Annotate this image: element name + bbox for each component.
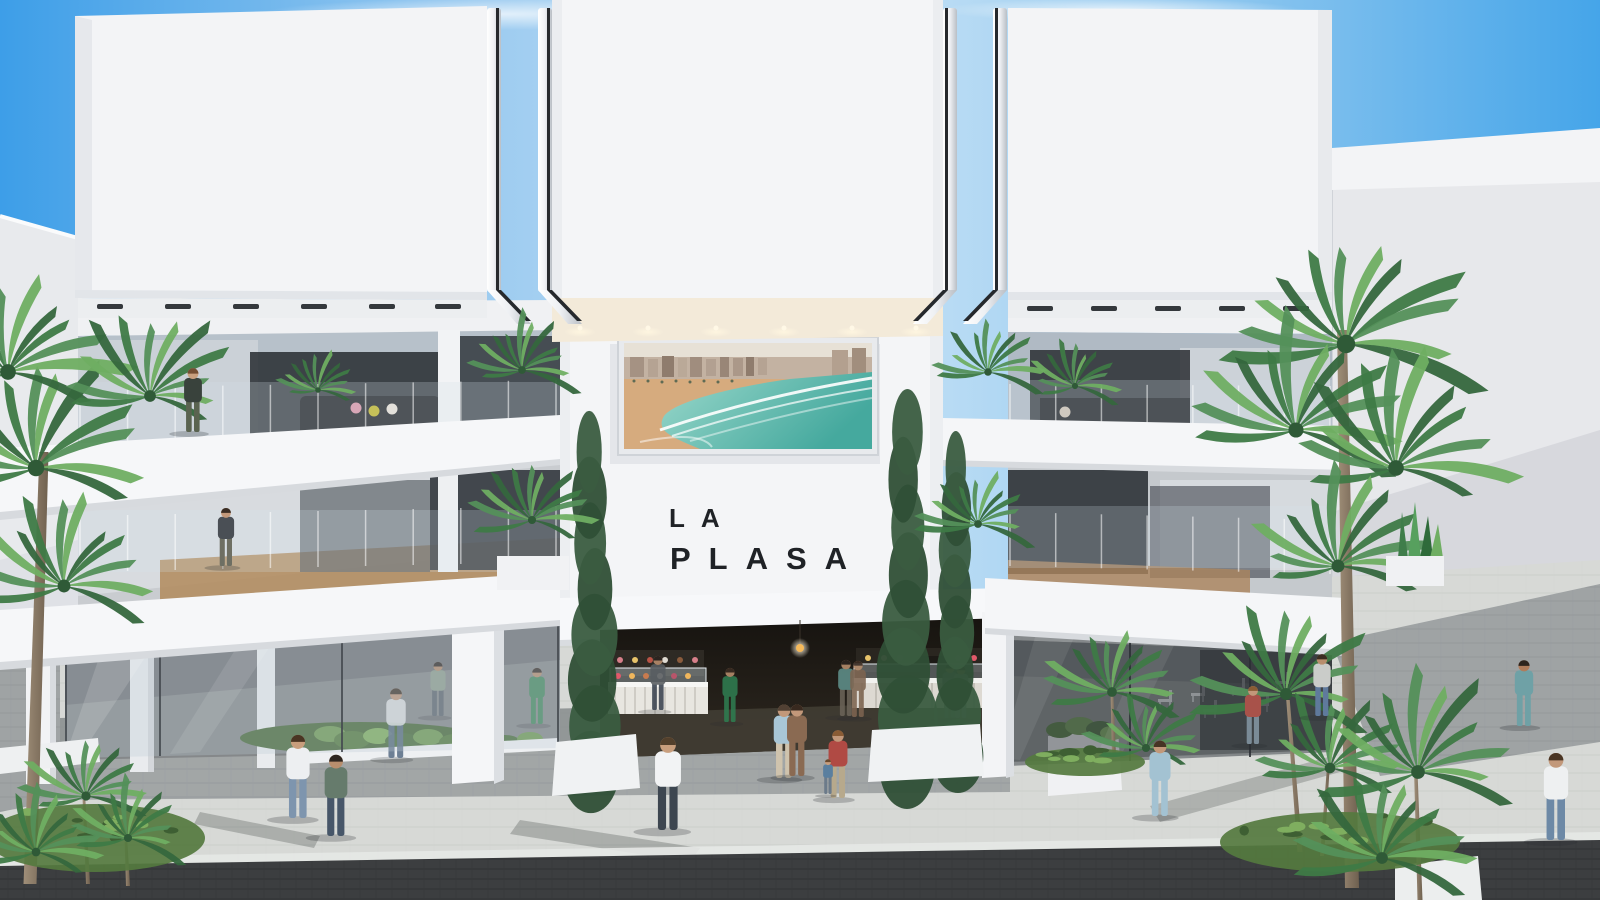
architectural-render-la-plasa: LA PLASA: [0, 0, 1600, 900]
top-volume-center: [552, 0, 943, 310]
downlight: [850, 326, 855, 331]
top-volume-right-side: [1318, 10, 1332, 300]
front-column-right-shade: [1006, 614, 1014, 778]
top-volumes: [75, 0, 1332, 342]
sofa-cushion: [351, 403, 362, 414]
downlight: [782, 326, 787, 331]
top-volume-right-bottom: [1008, 292, 1332, 300]
left-1f-railing-glass: [78, 510, 560, 572]
downlight: [578, 326, 583, 331]
chrome-tube-line: [496, 8, 499, 292]
sofa-cushion: [369, 406, 380, 417]
logo-line-1: LA: [669, 503, 736, 533]
downlight: [914, 326, 919, 331]
track-light: [435, 304, 461, 309]
billboard-beach-photo: [624, 343, 872, 449]
track-light: [165, 304, 191, 309]
top-volume-left-side: [75, 16, 92, 298]
sofa-cushion: [387, 404, 398, 415]
chrome-tube-line: [995, 8, 998, 292]
chrome-tube-line: [547, 8, 550, 292]
track-light: [233, 304, 259, 309]
cypress-planter-right: [868, 724, 984, 782]
logo-line-2: PLASA: [670, 541, 865, 576]
top-volume-center-edge: [552, 0, 562, 310]
track-light: [301, 304, 327, 309]
track-light: [97, 304, 123, 309]
cypress-planter-left: [552, 734, 640, 796]
left-ceiling-strip: [78, 298, 487, 318]
downlight: [714, 326, 719, 331]
front-column-left-shade: [494, 612, 504, 784]
track-light: [1091, 306, 1117, 311]
track-light: [1155, 306, 1181, 311]
track-light: [1219, 306, 1245, 311]
top-volume-right: [1008, 8, 1332, 300]
downlight: [646, 326, 651, 331]
center-lit-ceiling: [552, 298, 943, 342]
sofa-cushion: [1060, 407, 1071, 418]
track-light: [369, 304, 395, 309]
top-volume-center-edge: [933, 0, 943, 310]
track-light: [1027, 306, 1053, 311]
chrome-tube-line: [945, 8, 948, 292]
sansevieria-planter: [1386, 556, 1444, 586]
pendant-lamp: [796, 644, 804, 652]
top-volume-left: [75, 6, 487, 300]
mid-floor-planter: [497, 556, 569, 590]
